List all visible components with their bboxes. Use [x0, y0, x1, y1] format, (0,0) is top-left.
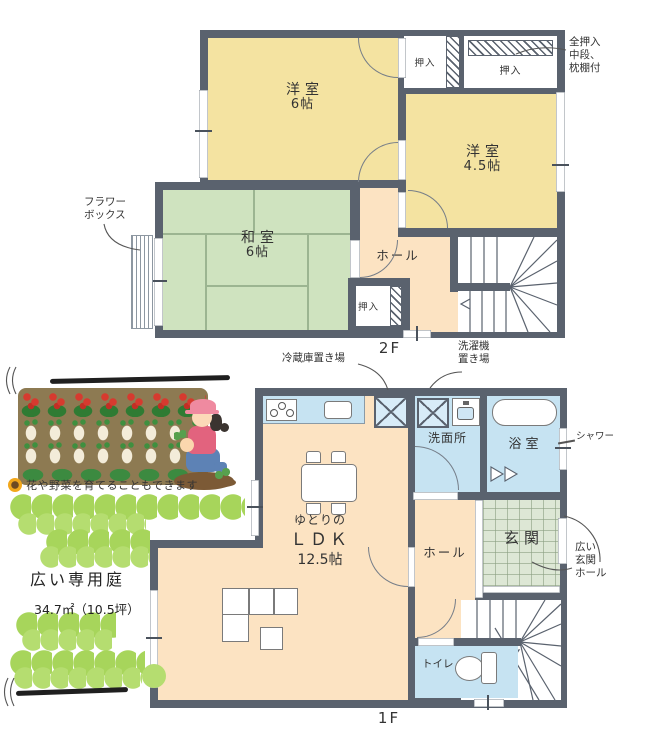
kitchen-sink — [324, 401, 352, 419]
grass-blob — [142, 664, 166, 688]
entrance-note-line2: 玄関 — [575, 554, 607, 567]
dining-chair — [306, 451, 321, 463]
gardener-hat-brim — [185, 410, 219, 414]
garden-caption: 花や野菜を育てることもできます — [26, 477, 198, 493]
window-tick — [195, 130, 212, 132]
garden-title: 広い専用庭 — [30, 566, 125, 590]
washer-note-line2: 置き場 — [458, 353, 490, 366]
toilet-bowl — [455, 656, 484, 681]
garden-caption-row: 花や野菜を育てることもできます — [8, 477, 198, 493]
room-western-6-size: 6帖 — [250, 98, 355, 113]
closet-2f-top-right-label: 押入 — [464, 62, 557, 77]
ldk-name: ＬＤＫ — [278, 531, 362, 551]
closet-2f-note: 全押入 中段、 枕棚付 — [569, 36, 601, 75]
sofa-divider — [273, 589, 275, 614]
garden-squiggle-bottom — [0, 676, 16, 708]
washroom-label: 洗面所 — [415, 432, 480, 446]
floor1-label: 1F — [371, 710, 407, 727]
window-western45-right — [556, 92, 565, 192]
stove-burner — [278, 402, 286, 410]
gardener-arm — [180, 438, 194, 452]
room-western-45-label: 洋室 4.5帖 — [430, 144, 535, 175]
toilet-label: トイレ — [422, 658, 454, 671]
door-gap-western45 — [398, 192, 406, 228]
floor2-label: 2F — [372, 340, 408, 357]
ldk-size: 12.5帖 — [278, 552, 362, 568]
wall-2f-stairs-bar — [450, 283, 510, 291]
room-japanese-6-label: 和室 6帖 — [205, 230, 310, 261]
flower-box-note: フラワー ボックス — [84, 196, 126, 222]
fridge-space-box — [374, 396, 408, 428]
sofa-divider — [248, 589, 250, 614]
closet-2f-top-left-label: 押入 — [414, 55, 435, 69]
closet-2f-top-left: 押入 — [404, 36, 446, 88]
entrance-step-strip — [475, 500, 483, 598]
window-tick — [146, 637, 162, 639]
tatami-line — [205, 285, 308, 287]
ldk-label: ゆとりの ＬＤＫ 12.5帖 — [278, 514, 362, 568]
sunflower-icon — [8, 478, 22, 492]
window-tick — [487, 695, 489, 710]
entrance-step — [483, 586, 560, 593]
room-western-6-name: 洋室 — [250, 82, 355, 98]
room-western-6-label: 洋室 6帖 — [250, 82, 355, 113]
window-kitchen-left — [251, 480, 259, 536]
door-gap-washroom — [413, 492, 458, 500]
washer-note-leader — [426, 368, 464, 390]
closet-2f-note-leader — [514, 42, 568, 58]
kitchen-counter — [263, 396, 365, 424]
dining-chair — [331, 451, 346, 463]
dining-table — [301, 464, 357, 502]
flower-box-leader — [98, 222, 144, 254]
window-tick — [416, 326, 418, 341]
door-gap-ldk — [408, 547, 415, 587]
stove-burner — [270, 409, 278, 417]
floorplan-canvas: 洋室 6帖 押入 押入 洋室 4.5帖 和室 6帖 ホール — [0, 0, 650, 736]
door-gap-western6-top — [398, 38, 406, 78]
seedling-patch — [210, 466, 238, 488]
closet-2f-bottom-hatch — [390, 286, 402, 326]
closet-2f-note-line3: 枕棚付 — [569, 62, 601, 75]
washer-note: 洗濯機 置き場 — [458, 340, 490, 366]
door-gap-toilet — [418, 638, 454, 646]
garden-fence-top — [50, 375, 230, 384]
sofa-back — [222, 588, 298, 615]
window-tick — [552, 164, 569, 166]
closet-2f-top-left-shelf-hatch — [446, 36, 460, 88]
side-table — [260, 627, 283, 650]
entrance-note-line3: ホール — [575, 567, 607, 580]
washbasin — [452, 398, 480, 426]
garden-squiggle-top — [2, 366, 18, 396]
door-gap-toilet-bottom — [474, 699, 504, 707]
hall-1f-label: ホール — [413, 546, 477, 560]
room-western-45-size: 4.5帖 — [430, 160, 535, 175]
flower-box-note-line2: ボックス — [84, 209, 126, 222]
stove-burner — [286, 409, 294, 417]
window-japanese6-left — [154, 238, 163, 326]
seedling-leaves — [215, 468, 231, 480]
door-gap-japanese6 — [350, 240, 360, 278]
washbasin-tap — [463, 401, 469, 405]
bathtub — [492, 399, 557, 426]
garden-area: 34.7㎡（10.5坪） — [34, 599, 140, 618]
entrance-note-line1: 広い — [575, 541, 607, 554]
closet-2f-note-line1: 全押入 — [569, 36, 601, 49]
ldk-prefix: ゆとりの — [278, 514, 362, 528]
window-tick — [555, 447, 571, 449]
window-bathroom — [559, 428, 567, 470]
closet-2f-bottom-label: 押入 — [358, 299, 379, 313]
bathroom-fold-door — [489, 464, 519, 484]
tatami-line — [253, 190, 255, 233]
entrance-note-leader — [530, 556, 574, 574]
bathroom-label: 浴室 — [487, 438, 560, 453]
toilet-tank — [481, 652, 497, 684]
washbasin-bowl — [457, 407, 474, 420]
washer-note-line1: 洗濯機 — [458, 340, 490, 353]
closet-2f-note-line2: 中段、 — [569, 49, 601, 62]
seedling-held — [174, 430, 186, 440]
stove — [266, 399, 297, 421]
flower-box-note-line1: フラワー — [84, 196, 126, 209]
room-japanese-6-name: 和室 — [205, 230, 310, 246]
room-japanese-6-size: 6帖 — [205, 246, 310, 261]
window-tick — [247, 506, 263, 508]
gardener-bun — [220, 423, 229, 432]
window-western6-left — [199, 90, 208, 178]
closet-2f-bottom: 押入 — [356, 286, 402, 326]
fridge-note: 冷蔵庫置き場 — [282, 352, 345, 365]
entrance-note: 広い 玄関 ホール — [575, 541, 607, 580]
washer-space-box — [417, 398, 449, 428]
fridge-note-leader — [354, 362, 392, 392]
shower-note: シャワー — [576, 431, 614, 443]
door-gap-western6-bottom — [398, 140, 406, 180]
room-western-45-name: 洋室 — [430, 144, 535, 160]
sofa-seat — [222, 614, 249, 642]
entrance-label: 玄関 — [483, 530, 560, 547]
